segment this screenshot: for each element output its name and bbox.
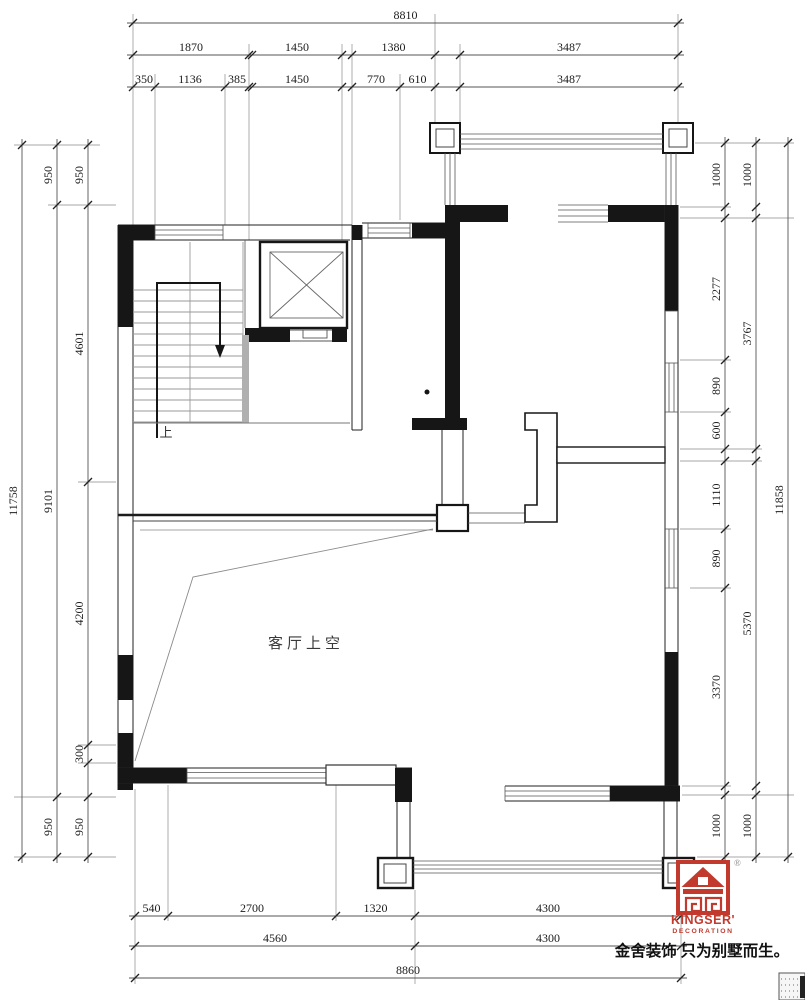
window-step-wall — [368, 223, 410, 238]
dim-label: 4300 — [536, 901, 560, 915]
logo-tagline: 金舍装饰 只为别墅而生。 — [614, 941, 789, 960]
window-living-bottom — [187, 768, 328, 783]
dim-label: 1450 — [285, 72, 309, 86]
dim-label: 8860 — [396, 963, 420, 977]
dim-label: 5370 — [740, 612, 754, 636]
dim-label: 2277 — [709, 277, 723, 301]
bottom-columns — [378, 858, 694, 888]
interior-wall-horizontal — [557, 447, 665, 463]
dim-chain-bottom-inner: 540270013204300 — [129, 901, 687, 920]
top-columns — [430, 123, 693, 205]
living-room-void-label: 客厅上空 — [268, 635, 344, 652]
door-lintel — [326, 765, 396, 785]
dim-label: 1870 — [179, 40, 203, 54]
staircase — [133, 242, 243, 423]
dim-label: 3487 — [557, 40, 581, 54]
dim-chain-left-mid: 9509101950 — [41, 139, 61, 863]
dim-label: 8810 — [394, 8, 418, 22]
dim-chain-right-inner: 10002277890600111089033701000 — [709, 137, 729, 863]
dim-chain-bottom-mid: 45604300 — [129, 931, 687, 950]
dim-chain-left-inner: 95046014200300950 — [72, 139, 92, 863]
wall-black-left-top — [118, 225, 133, 327]
dim-label: 950 — [41, 818, 55, 836]
window-bottom-right — [505, 786, 610, 801]
window-top-right-wall — [558, 205, 608, 222]
plan-walls — [118, 123, 694, 888]
dim-label: 1000 — [740, 814, 754, 838]
window-right-wall-upper — [665, 363, 678, 412]
dim-label: 9101 — [41, 489, 55, 513]
dim-label: 1450 — [285, 40, 309, 54]
dim-label: 1136 — [178, 72, 202, 86]
dim-label: 890 — [709, 550, 723, 568]
logo-sub-text: DECORATION — [672, 928, 733, 935]
logo-brand-text: KINGSER' — [671, 913, 735, 927]
corner-hatch-block — [779, 973, 805, 1000]
wall-black-top-left-corner — [118, 225, 155, 240]
dim-label: 1000 — [740, 163, 754, 187]
stair-up-label: 上 — [159, 425, 172, 440]
window-top-left — [155, 225, 223, 240]
dim-chain-left-total: 11758 — [6, 139, 26, 863]
dim-chain-right-mid: 1000376753701000 — [740, 137, 760, 863]
dim-chain-right-total: 11858 — [772, 137, 792, 863]
floorplan-drawing: 8810187014501380348735011363851450770610… — [0, 0, 805, 1000]
dim-label: 3767 — [740, 322, 754, 346]
dim-label: 950 — [41, 166, 55, 184]
dim-label: 890 — [709, 377, 723, 395]
dim-label: 4560 — [263, 931, 287, 945]
dim-label: 4601 — [72, 332, 86, 356]
dim-label: 300 — [72, 745, 86, 763]
dim-label: 350 — [135, 72, 153, 86]
dim-chain-bottom-total: 8860 — [129, 963, 687, 982]
stair-direction-line — [157, 283, 220, 438]
window-right-wall-lower — [665, 529, 678, 588]
dim-label: 2700 — [240, 901, 264, 915]
dim-label: 3487 — [557, 72, 581, 86]
column-mid — [437, 505, 468, 531]
dim-label: 1000 — [709, 814, 723, 838]
dim-label: 950 — [72, 818, 86, 836]
dim-label: 1320 — [364, 901, 388, 915]
dim-label: 385 — [228, 72, 246, 86]
dim-label: 540 — [143, 901, 161, 915]
point-marker — [425, 390, 430, 395]
dim-label: 4300 — [536, 931, 560, 945]
dim-label: 3370 — [709, 675, 723, 699]
interior-wall-h — [525, 413, 557, 522]
dim-label: 1110 — [709, 483, 723, 506]
dim-label: 1380 — [382, 40, 406, 54]
dim-label: 770 — [367, 72, 385, 86]
floorplan-sheet: 8810187014501380348735011363851450770610… — [0, 0, 805, 1000]
dim-label: 11758 — [6, 486, 20, 516]
dim-label: 950 — [72, 166, 86, 184]
dim-label: 610 — [409, 72, 427, 86]
dim-label: 11858 — [772, 485, 786, 515]
dim-label: 600 — [709, 422, 723, 440]
dim-label: 4200 — [72, 602, 86, 626]
dim-chain-top-mid: 1870145013803487 — [127, 40, 684, 59]
dim-label: 1000 — [709, 163, 723, 187]
wall-black-left-mid — [118, 655, 133, 700]
elevator-shaft — [245, 240, 347, 342]
registered-mark: ® — [734, 858, 741, 868]
dim-chain-top-inner: 350113638514507706103487 — [127, 72, 684, 91]
dim-chain-top-total: 8810 — [127, 8, 684, 27]
